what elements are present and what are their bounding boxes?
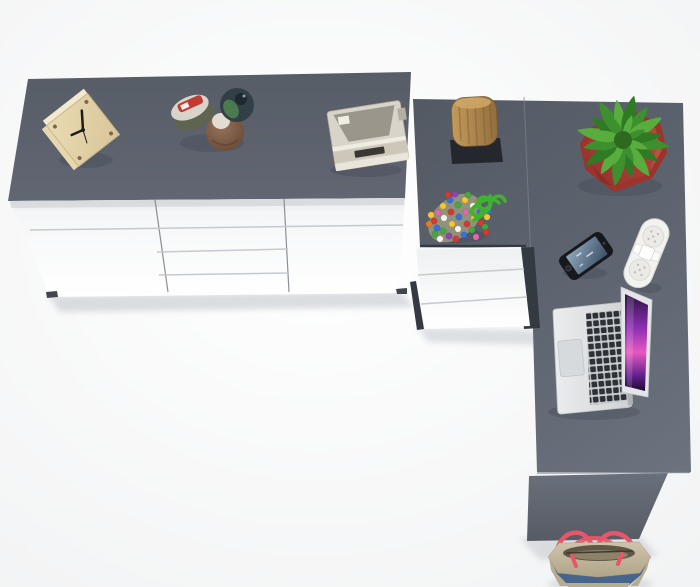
product-render: [0, 0, 700, 587]
pouch-bead: [428, 212, 434, 218]
figurine-highlight: [243, 95, 246, 98]
camera-viewfinder: [338, 115, 350, 125]
pouch-bead: [441, 215, 447, 221]
pouch-bead: [446, 233, 452, 239]
pouch-bead: [453, 236, 459, 242]
plant-center: [614, 131, 632, 149]
pouch-bead: [448, 209, 454, 215]
stump-decor: [450, 96, 503, 164]
pouch-bead: [432, 231, 438, 237]
figurine-head: [235, 93, 247, 105]
figurine-dark: [220, 88, 254, 122]
pouch-bead: [483, 229, 489, 235]
drawer-pedestal: [410, 247, 530, 330]
pouch-bead: [440, 228, 446, 234]
pouch-bead: [449, 221, 455, 227]
pouch-bead: [456, 214, 462, 220]
pouch-bead: [452, 191, 458, 197]
pouch-bead: [435, 210, 441, 216]
tree-stump: [451, 96, 499, 147]
pouch-bead: [469, 227, 475, 233]
pouch-bead: [464, 221, 470, 227]
sideboard-foot: [396, 288, 407, 294]
scene-svg: [0, 0, 700, 587]
pouch-bead: [463, 209, 469, 215]
pouch-bead: [437, 236, 443, 242]
bag-bottom: [566, 583, 630, 587]
sideboard-foot: [46, 291, 58, 298]
pouch-bead: [465, 192, 471, 198]
desk-front-edge: [537, 473, 690, 474]
pouch-bead: [434, 225, 440, 231]
pouch-bead: [461, 232, 467, 238]
pouch-bead: [440, 203, 446, 209]
laptop-trackpad: [557, 339, 584, 377]
pouch-bead: [455, 202, 461, 208]
pouch-bead: [473, 234, 479, 240]
vintage-camera: [327, 100, 413, 171]
pouch-bead: [445, 192, 451, 198]
sideboard-front: [10, 198, 405, 297]
pouch-bead: [426, 221, 432, 227]
pouch-bead: [455, 226, 461, 232]
pedestal-front: [416, 247, 530, 329]
